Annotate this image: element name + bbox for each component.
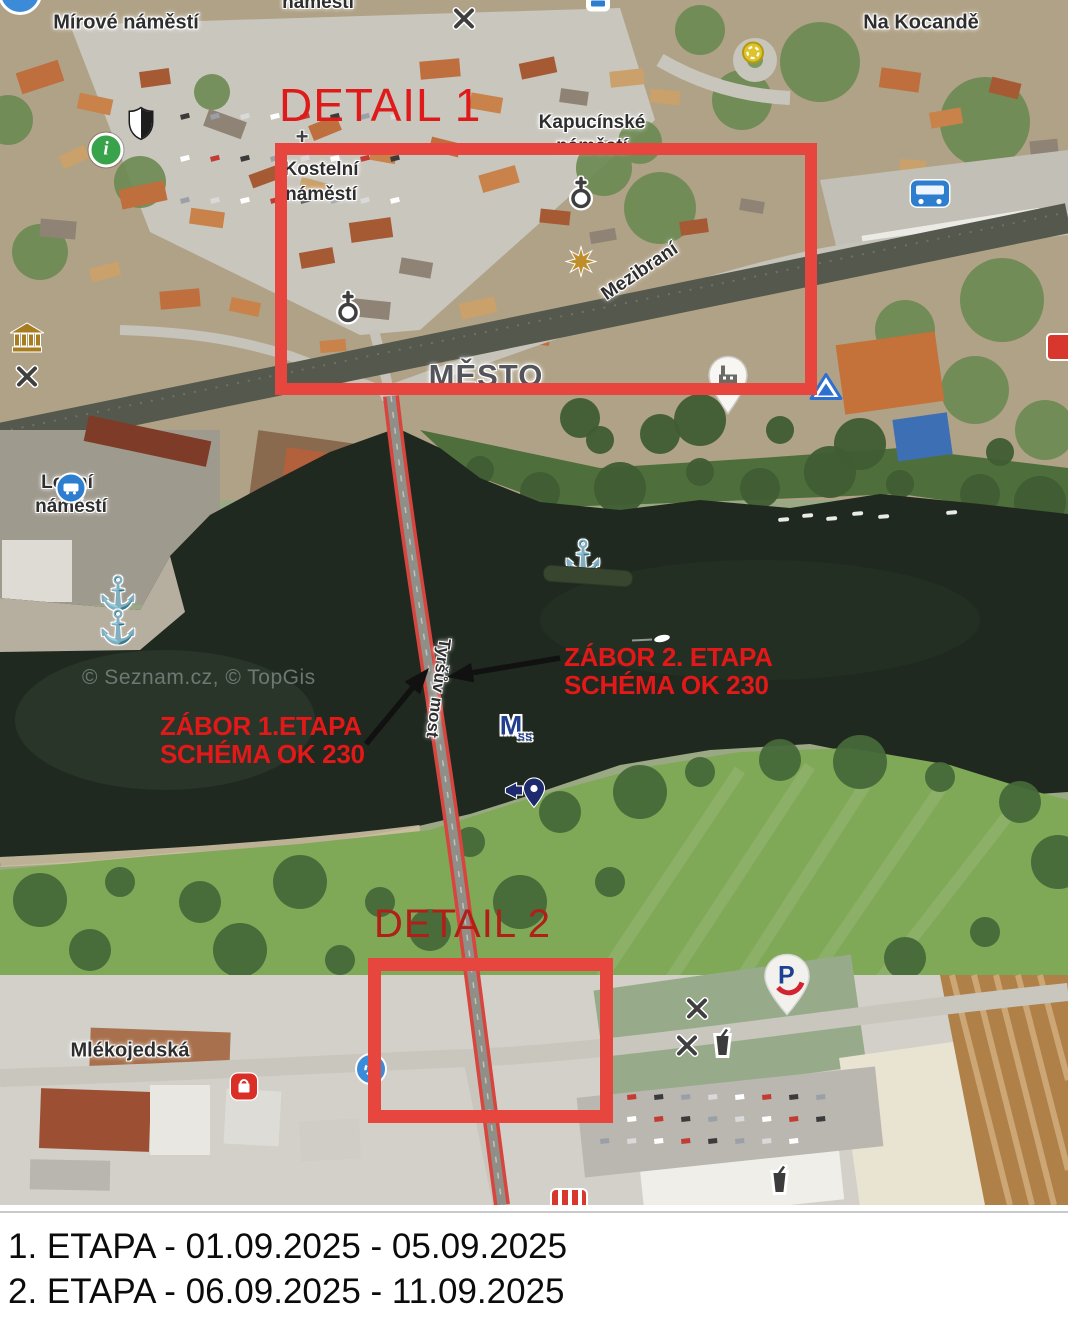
etapa-2-line: 2. ETAPA - 06.09.2025 - 11.09.2025 bbox=[8, 1272, 565, 1312]
legend: 1. ETAPA - 01.09.2025 - 05.09.2025 2. ET… bbox=[0, 1205, 1068, 1331]
etapa-1-line: 1. ETAPA - 01.09.2025 - 05.09.2025 bbox=[8, 1227, 567, 1267]
annotation-arrow-1 bbox=[447, 663, 474, 683]
construction-stages-map-document: náměstíMírové náměstíNa KocanděKapucínsk… bbox=[0, 0, 1068, 1331]
annotation-arrows bbox=[0, 0, 1068, 1205]
annotation-arrow-1 bbox=[460, 658, 560, 675]
